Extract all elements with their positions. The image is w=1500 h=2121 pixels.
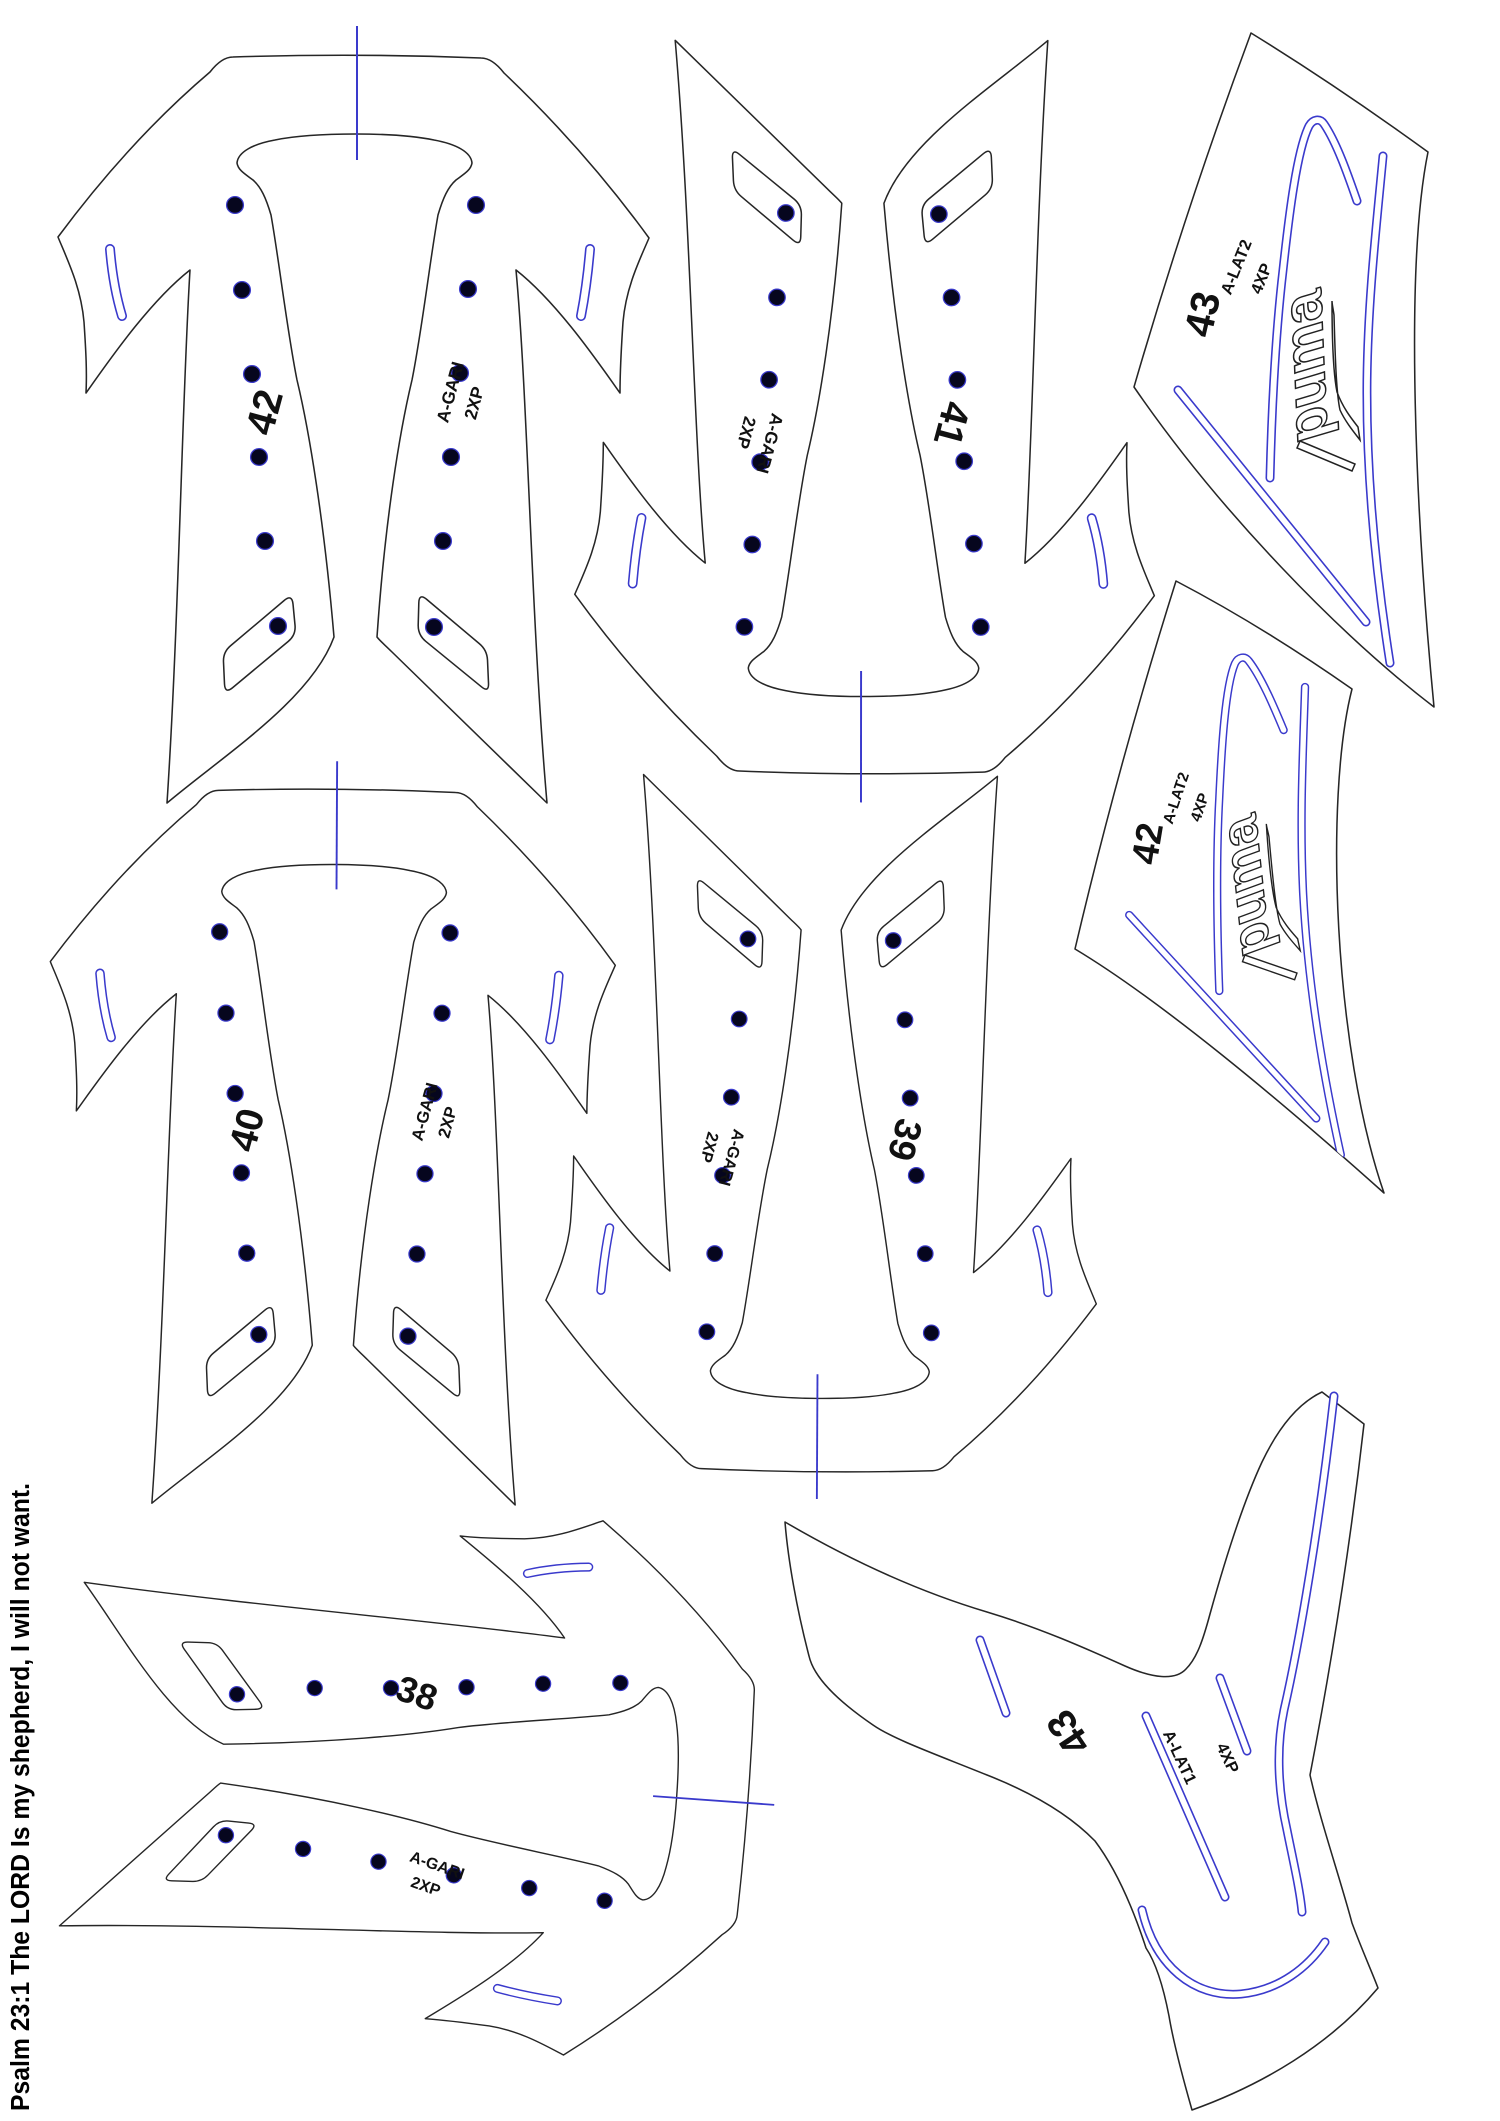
svg-text:42: 42 [1124,820,1171,867]
svg-text:puma: puma [1272,283,1340,451]
svg-text:Psalm 23:1 The LORD Is my shep: Psalm 23:1 The LORD Is my shepherd, I wi… [7,1483,35,2111]
